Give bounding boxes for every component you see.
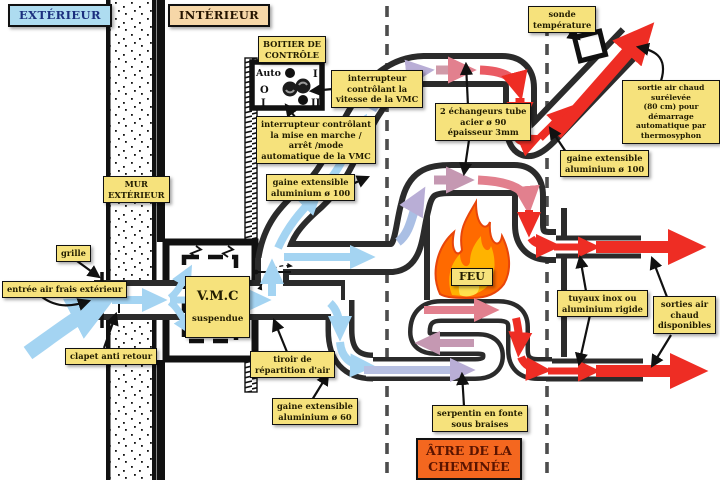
label-sortie-thermosyphon: sortie air chaud surélevée (80 cm) pour …	[622, 80, 720, 144]
speed-switch-knob[interactable]	[296, 79, 311, 94]
speed-switch-dot	[298, 95, 308, 105]
temperature-probe-icon	[574, 31, 605, 61]
label-2-echangeurs: 2 échangeurs tube acier ø 90 épaisseur 3…	[435, 103, 531, 141]
label-gaine-60: gaine extensible aluminium ø 60	[272, 398, 358, 425]
switch-label-ii: II	[311, 98, 321, 109]
vmc-fireplace-diagram: Auto O I I II	[0, 0, 720, 480]
label-tiroir-repartition: tiroir de répartition d'air	[250, 351, 335, 378]
switch-label-i-right: I	[313, 69, 318, 80]
label-interieur: INTÉRIEUR	[168, 4, 270, 27]
label-exterior: EXTÉRIEUR	[8, 4, 112, 27]
label-feu: FEU	[451, 268, 493, 286]
vmc-state: suspendue	[192, 315, 243, 324]
interior-wall-line	[157, 0, 165, 242]
exterior-wall	[106, 0, 157, 480]
vmc-name: V.M.C	[192, 290, 243, 304]
label-vmc: V.M.C suspendue	[185, 276, 250, 338]
interior-wall-line	[157, 360, 165, 480]
label-clapet-anti-retour: clapet anti retour	[65, 348, 157, 365]
label-gaine-100-right: gaine extensible aluminium ø 100	[560, 150, 649, 177]
label-interrupteur-marche: interrupteur contrôlant la mise en march…	[256, 116, 376, 164]
label-atre-cheminee: ÂTRE DE LA CHEMINÉE	[416, 438, 522, 480]
label-mur-exterieur: MUR EXTÉRIEUR	[103, 176, 170, 203]
label-grille: grille	[56, 245, 91, 262]
label-sonde-temperature: sonde température	[528, 6, 596, 33]
hot-air-arrow	[516, 318, 519, 348]
switch-label-auto: Auto	[255, 68, 281, 79]
switch-label-i-left: I	[261, 98, 266, 109]
label-entree-air-frais: entrée air frais extérieur	[2, 281, 127, 298]
switch-label-o: O	[260, 85, 269, 96]
label-interrupteur-vitesse: interrupteur contrôlant la vitesse de la…	[331, 70, 423, 108]
label-boitier-de-controle: BOITIER DE CONTRÔLE	[258, 36, 326, 63]
label-sorties-air-chaud: sorties air chaud disponibles	[653, 296, 716, 334]
label-tuyaux-inox: tuyaux inox ou aluminium rigide	[557, 290, 648, 317]
power-switch-dot	[285, 68, 295, 78]
cold-air-arrow	[28, 305, 100, 353]
label-gaine-100-left: gaine extensible aluminium ø 100	[266, 174, 355, 201]
control-box: Auto O I I II	[252, 62, 322, 109]
power-switch-knob[interactable]	[283, 82, 298, 97]
label-serpentin: serpentin en fonte sous braises	[432, 405, 528, 432]
